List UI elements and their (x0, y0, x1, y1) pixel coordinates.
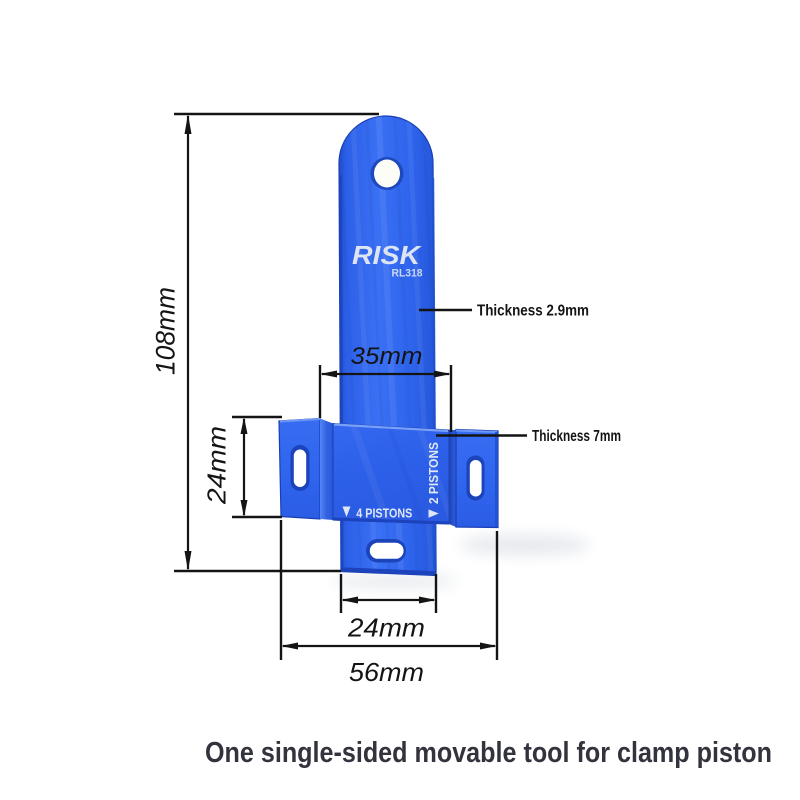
svg-text:24mm: 24mm (347, 613, 425, 643)
svg-text:RISK: RISK (352, 240, 422, 270)
svg-text:2 PISTONS: 2 PISTONS (427, 442, 441, 504)
svg-text:RL318: RL318 (392, 268, 423, 280)
svg-text:35mm: 35mm (351, 343, 423, 370)
svg-text:24mm: 24mm (202, 426, 232, 505)
svg-text:4 PISTONS: 4 PISTONS (356, 506, 412, 521)
svg-text:Thickness 7mm: Thickness 7mm (532, 428, 621, 445)
svg-text:108mm: 108mm (151, 287, 181, 375)
svg-text:Thickness 2.9mm: Thickness 2.9mm (477, 303, 589, 320)
svg-text:56mm: 56mm (349, 657, 424, 687)
svg-text:One single-sided movable tool: One single-sided movable tool for clamp … (205, 737, 772, 769)
